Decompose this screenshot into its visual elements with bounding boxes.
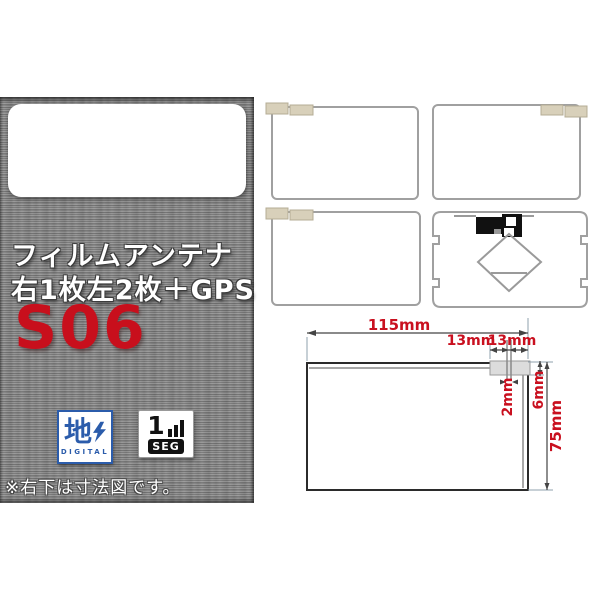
model-code: S06	[14, 300, 147, 356]
terrestrial-digital-logo: 地 DIGITAL	[57, 410, 113, 464]
oneseg-digit: 1	[147, 415, 164, 437]
digital-logo-mark: 地	[64, 418, 106, 446]
broadcast-logos: 地 DIGITAL 1 SEG	[57, 410, 194, 464]
oneseg-logo: 1 SEG	[138, 410, 194, 458]
digital-kanji: 地	[64, 418, 92, 446]
dimension-diagram: 115mm 13mm 13mm 2mm 6mm 75mm	[307, 316, 565, 490]
signal-bars-icon	[168, 420, 185, 437]
blank-title-card	[8, 104, 246, 197]
product-image: フィルムアンテナ 右1枚左2枚＋GPS S06 地 DIGITAL 1	[0, 0, 600, 600]
lightning-icon	[93, 421, 106, 443]
diagrams-svg: 115mm 13mm 13mm 2mm 6mm 75mm	[260, 95, 600, 510]
gps-film-antenna-icon	[433, 212, 587, 307]
digital-logo-label: DIGITAL	[61, 448, 109, 456]
footnote: ※右下は寸法図です。	[5, 473, 181, 498]
film-antenna-bottom-left-icon	[266, 208, 420, 305]
dim-height-total: 75mm	[547, 400, 565, 452]
film-antenna-top-right-icon	[433, 105, 587, 199]
dim-width-total: 115mm	[368, 316, 431, 334]
oneseg-logo-label: SEG	[148, 439, 183, 454]
textured-panel: フィルムアンテナ 右1枚左2枚＋GPS S06 地 DIGITAL 1	[0, 97, 254, 503]
dim-tab-height: 6mm	[531, 371, 547, 410]
dim-element-gap: 2mm	[500, 378, 516, 417]
oneseg-logo-mark: 1	[147, 415, 184, 437]
film-antenna-top-left-icon	[266, 103, 418, 199]
dim-tab-right: 13mm	[488, 333, 537, 349]
